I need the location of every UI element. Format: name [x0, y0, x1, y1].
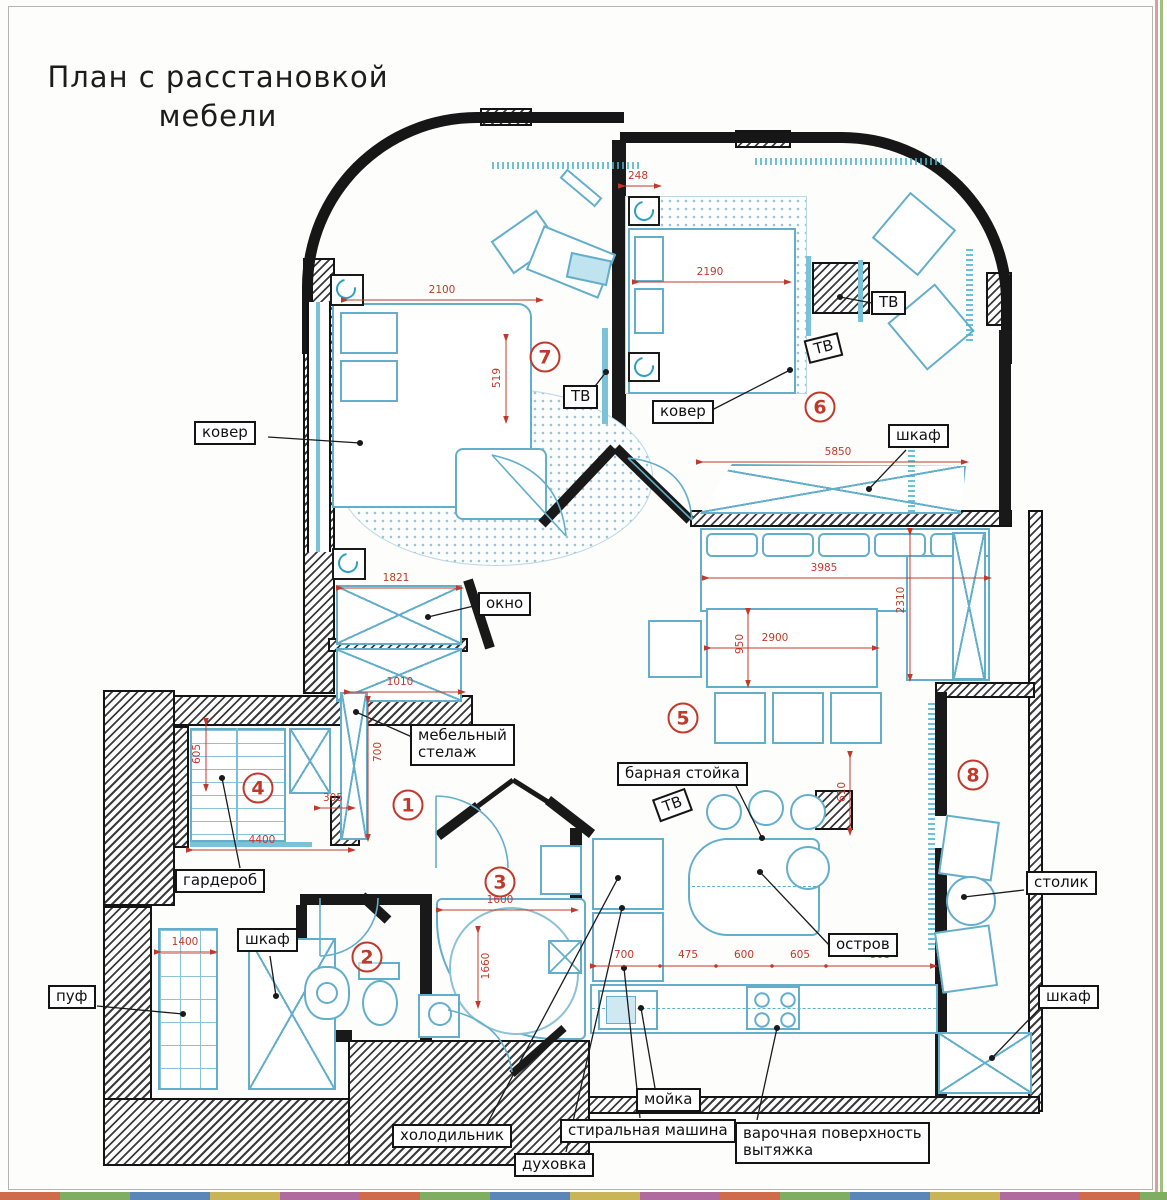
- wall-bottom-left: [103, 1098, 353, 1166]
- handwriting-scribble: [966, 246, 973, 341]
- label-garderob: гардероб: [175, 869, 265, 893]
- dining-chair: [830, 692, 882, 744]
- handwriting-scribble: [492, 162, 642, 169]
- wall-right-outer: [1028, 510, 1043, 1112]
- washing-machine-drum: [428, 1002, 452, 1026]
- tv-panel-room6: [858, 260, 863, 322]
- counter-dash: [592, 1008, 936, 1009]
- wardrobe-living-right: [952, 532, 986, 680]
- armchair-room8: [938, 815, 1000, 882]
- label-puf: пуф: [48, 985, 96, 1009]
- label-shkaf-top: шкаф: [888, 424, 949, 448]
- island-sink: [786, 846, 830, 890]
- handwriting-scribble: [928, 700, 935, 950]
- room-number-8: 8: [958, 760, 989, 791]
- label-shkaf-hall: шкаф: [237, 928, 298, 952]
- label-shkaf-room8: шкаф: [1038, 985, 1099, 1009]
- label-stolik: столик: [1026, 871, 1097, 895]
- dimension-text: 305: [323, 792, 343, 804]
- bath-cabinet: [540, 845, 582, 895]
- dimension-text: 700: [372, 742, 384, 762]
- scan-strip-right-green: [1160, 0, 1163, 1200]
- room-number-4: 4: [243, 773, 274, 804]
- bed-foot-room7: [455, 448, 547, 520]
- island-dash: [692, 886, 816, 887]
- vent-icon: [330, 274, 364, 306]
- room-number-6: 6: [805, 392, 836, 423]
- pillow: [634, 236, 664, 282]
- dimension-text: 519: [491, 368, 503, 388]
- wall-left-block-upper: [103, 690, 175, 906]
- wardrobe-living-top: [700, 464, 966, 514]
- round-table-room8: [946, 876, 996, 926]
- label-tv-room7: ТВ: [563, 385, 598, 409]
- vent-icon: [628, 352, 660, 382]
- dining-table: [706, 608, 878, 688]
- scan-strip-right-pink: [1155, 0, 1158, 1200]
- oven-unit: [592, 912, 664, 982]
- dimension-text: 1400: [172, 936, 199, 948]
- label-ostrov: остров: [828, 933, 898, 957]
- dining-chair: [772, 692, 824, 744]
- wall-toilet-top: [300, 894, 432, 905]
- dimension-text: 2190: [697, 266, 724, 278]
- label-stellazh: мебельный стелаж: [410, 724, 515, 766]
- label-okno: окно: [478, 592, 531, 616]
- tv-panel-room7: [602, 328, 608, 424]
- bar-stool: [748, 790, 784, 826]
- label-kover-left: ковер: [194, 421, 256, 445]
- room-number-1: 1: [393, 790, 424, 821]
- label-bar-stoyka: барная стойка: [617, 762, 748, 786]
- bath-grate: [548, 940, 582, 974]
- armchair-room8: [934, 924, 998, 993]
- closet-cross-unit: [289, 728, 331, 794]
- fridge-unit: [592, 838, 664, 910]
- scan-strip-bottom: [0, 1192, 1167, 1200]
- room-number-7: 7: [530, 342, 561, 373]
- vent-icon: [628, 196, 660, 226]
- dimension-text: 605: [790, 949, 810, 961]
- label-moika: мойка: [636, 1088, 701, 1112]
- dimension-text: 600: [734, 949, 754, 961]
- pillow: [340, 360, 398, 402]
- label-kover-room6: ковер: [652, 400, 714, 424]
- bar-stool: [706, 794, 742, 830]
- wall-room7-room6: [612, 140, 626, 452]
- kitchen-sink-bowl: [606, 996, 636, 1024]
- wall-closet-left: [173, 726, 189, 848]
- wall-room8-left-a: [935, 692, 947, 816]
- pillow: [634, 288, 664, 334]
- sofa-cushion: [874, 533, 926, 557]
- tv-shelf-room6: [806, 256, 811, 336]
- dimension-text: 605: [191, 744, 203, 764]
- vent-icon: [332, 548, 366, 580]
- dimension-text: 5850: [825, 446, 852, 458]
- label-kholodilnik: холодильник: [392, 1124, 512, 1148]
- pillow: [340, 312, 398, 354]
- dimension-text: 1660: [480, 953, 492, 980]
- dimension-text: 610: [836, 782, 848, 802]
- sofa-cushion: [818, 533, 870, 557]
- floor-plan-page: План с расстановкой мебели: [0, 0, 1167, 1200]
- label-tv-room6: ТВ: [871, 291, 906, 315]
- sofa-cushion: [706, 533, 758, 557]
- dining-chair: [714, 692, 766, 744]
- furniture-stellazh: [340, 692, 368, 840]
- dimension-text: 2100: [429, 284, 456, 296]
- room-number-3: 3: [485, 867, 516, 898]
- dimension-text: 1010: [387, 676, 414, 688]
- wall-room8-top: [935, 682, 1035, 698]
- dimension-text: 1821: [383, 572, 410, 584]
- room-number-2: 2: [352, 942, 383, 973]
- page-title-line2: мебели: [38, 97, 398, 136]
- toilet-bowl: [362, 980, 398, 1026]
- dimension-text: 950: [734, 634, 746, 654]
- sink-toilet-bowl: [316, 982, 338, 1004]
- label-stiralnaya: стиральная машина: [560, 1119, 736, 1143]
- label-dukhovka: духовка: [514, 1153, 594, 1177]
- dimension-text: 3985: [811, 562, 838, 574]
- bar-stool: [790, 794, 826, 830]
- dining-chair: [648, 620, 702, 678]
- dimension-text: 2310: [895, 587, 907, 614]
- wardrobe-room8: [938, 1032, 1032, 1094]
- label-varochnaya: варочная поверхность вытяжка: [735, 1122, 930, 1164]
- dimension-text: 700: [614, 949, 634, 961]
- dimension-text: 2900: [762, 632, 789, 644]
- shoe-cabinet: [158, 928, 218, 1090]
- page-title-line1: План с расстановкой: [38, 58, 398, 97]
- wall-right-upper: [999, 330, 1011, 525]
- dimension-text: 475: [678, 949, 698, 961]
- page-title: План с расстановкой мебели: [38, 58, 398, 136]
- handwriting-scribble: [755, 158, 945, 165]
- dimension-text: 4400: [249, 834, 276, 846]
- window-left-glass: [316, 302, 320, 552]
- sofa-cushion: [762, 533, 814, 557]
- closet-divider: [236, 728, 238, 842]
- wardrobe-room7-a: [336, 585, 462, 645]
- room-number-5: 5: [668, 703, 699, 734]
- dimension-text: 248: [628, 170, 648, 182]
